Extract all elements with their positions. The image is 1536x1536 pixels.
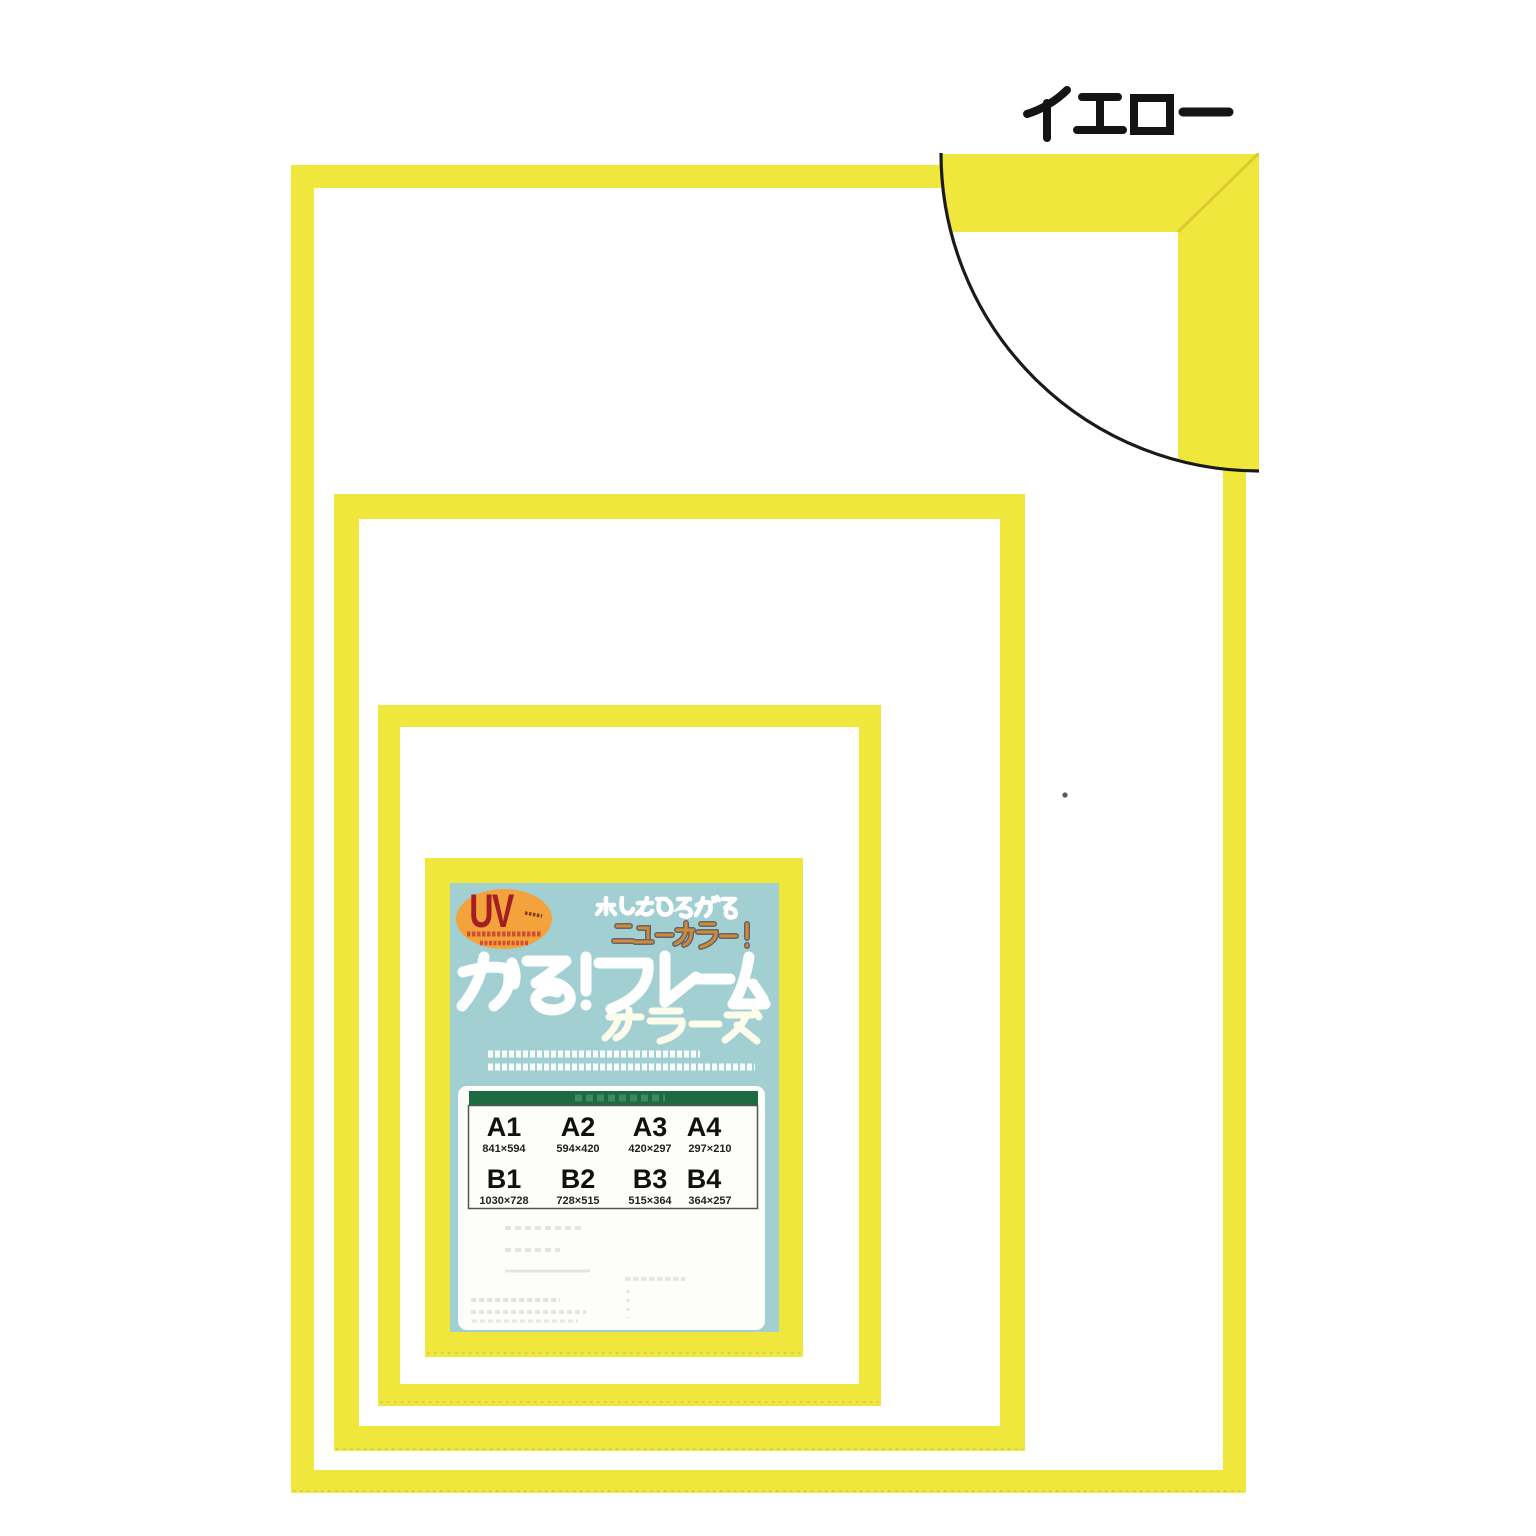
svg-text:515×364: 515×364 <box>628 1195 672 1207</box>
svg-text:A2: A2 <box>561 1112 596 1142</box>
svg-text:UV: UV <box>469 884 514 937</box>
svg-text:B2: B2 <box>561 1164 596 1194</box>
svg-text:420×297: 420×297 <box>628 1143 671 1155</box>
svg-text:728×515: 728×515 <box>556 1195 599 1207</box>
svg-text:B4: B4 <box>687 1164 722 1194</box>
svg-text:841×594: 841×594 <box>482 1143 526 1155</box>
svg-text:A1: A1 <box>487 1112 522 1142</box>
svg-text:B3: B3 <box>633 1164 668 1194</box>
svg-text:297×210: 297×210 <box>688 1143 731 1155</box>
svg-text:594×420: 594×420 <box>556 1143 599 1155</box>
svg-text:A4: A4 <box>687 1112 722 1142</box>
svg-text:B1: B1 <box>487 1164 522 1194</box>
svg-text:1030×728: 1030×728 <box>479 1195 528 1207</box>
svg-text:364×257: 364×257 <box>688 1195 731 1207</box>
svg-text:A3: A3 <box>633 1112 668 1142</box>
